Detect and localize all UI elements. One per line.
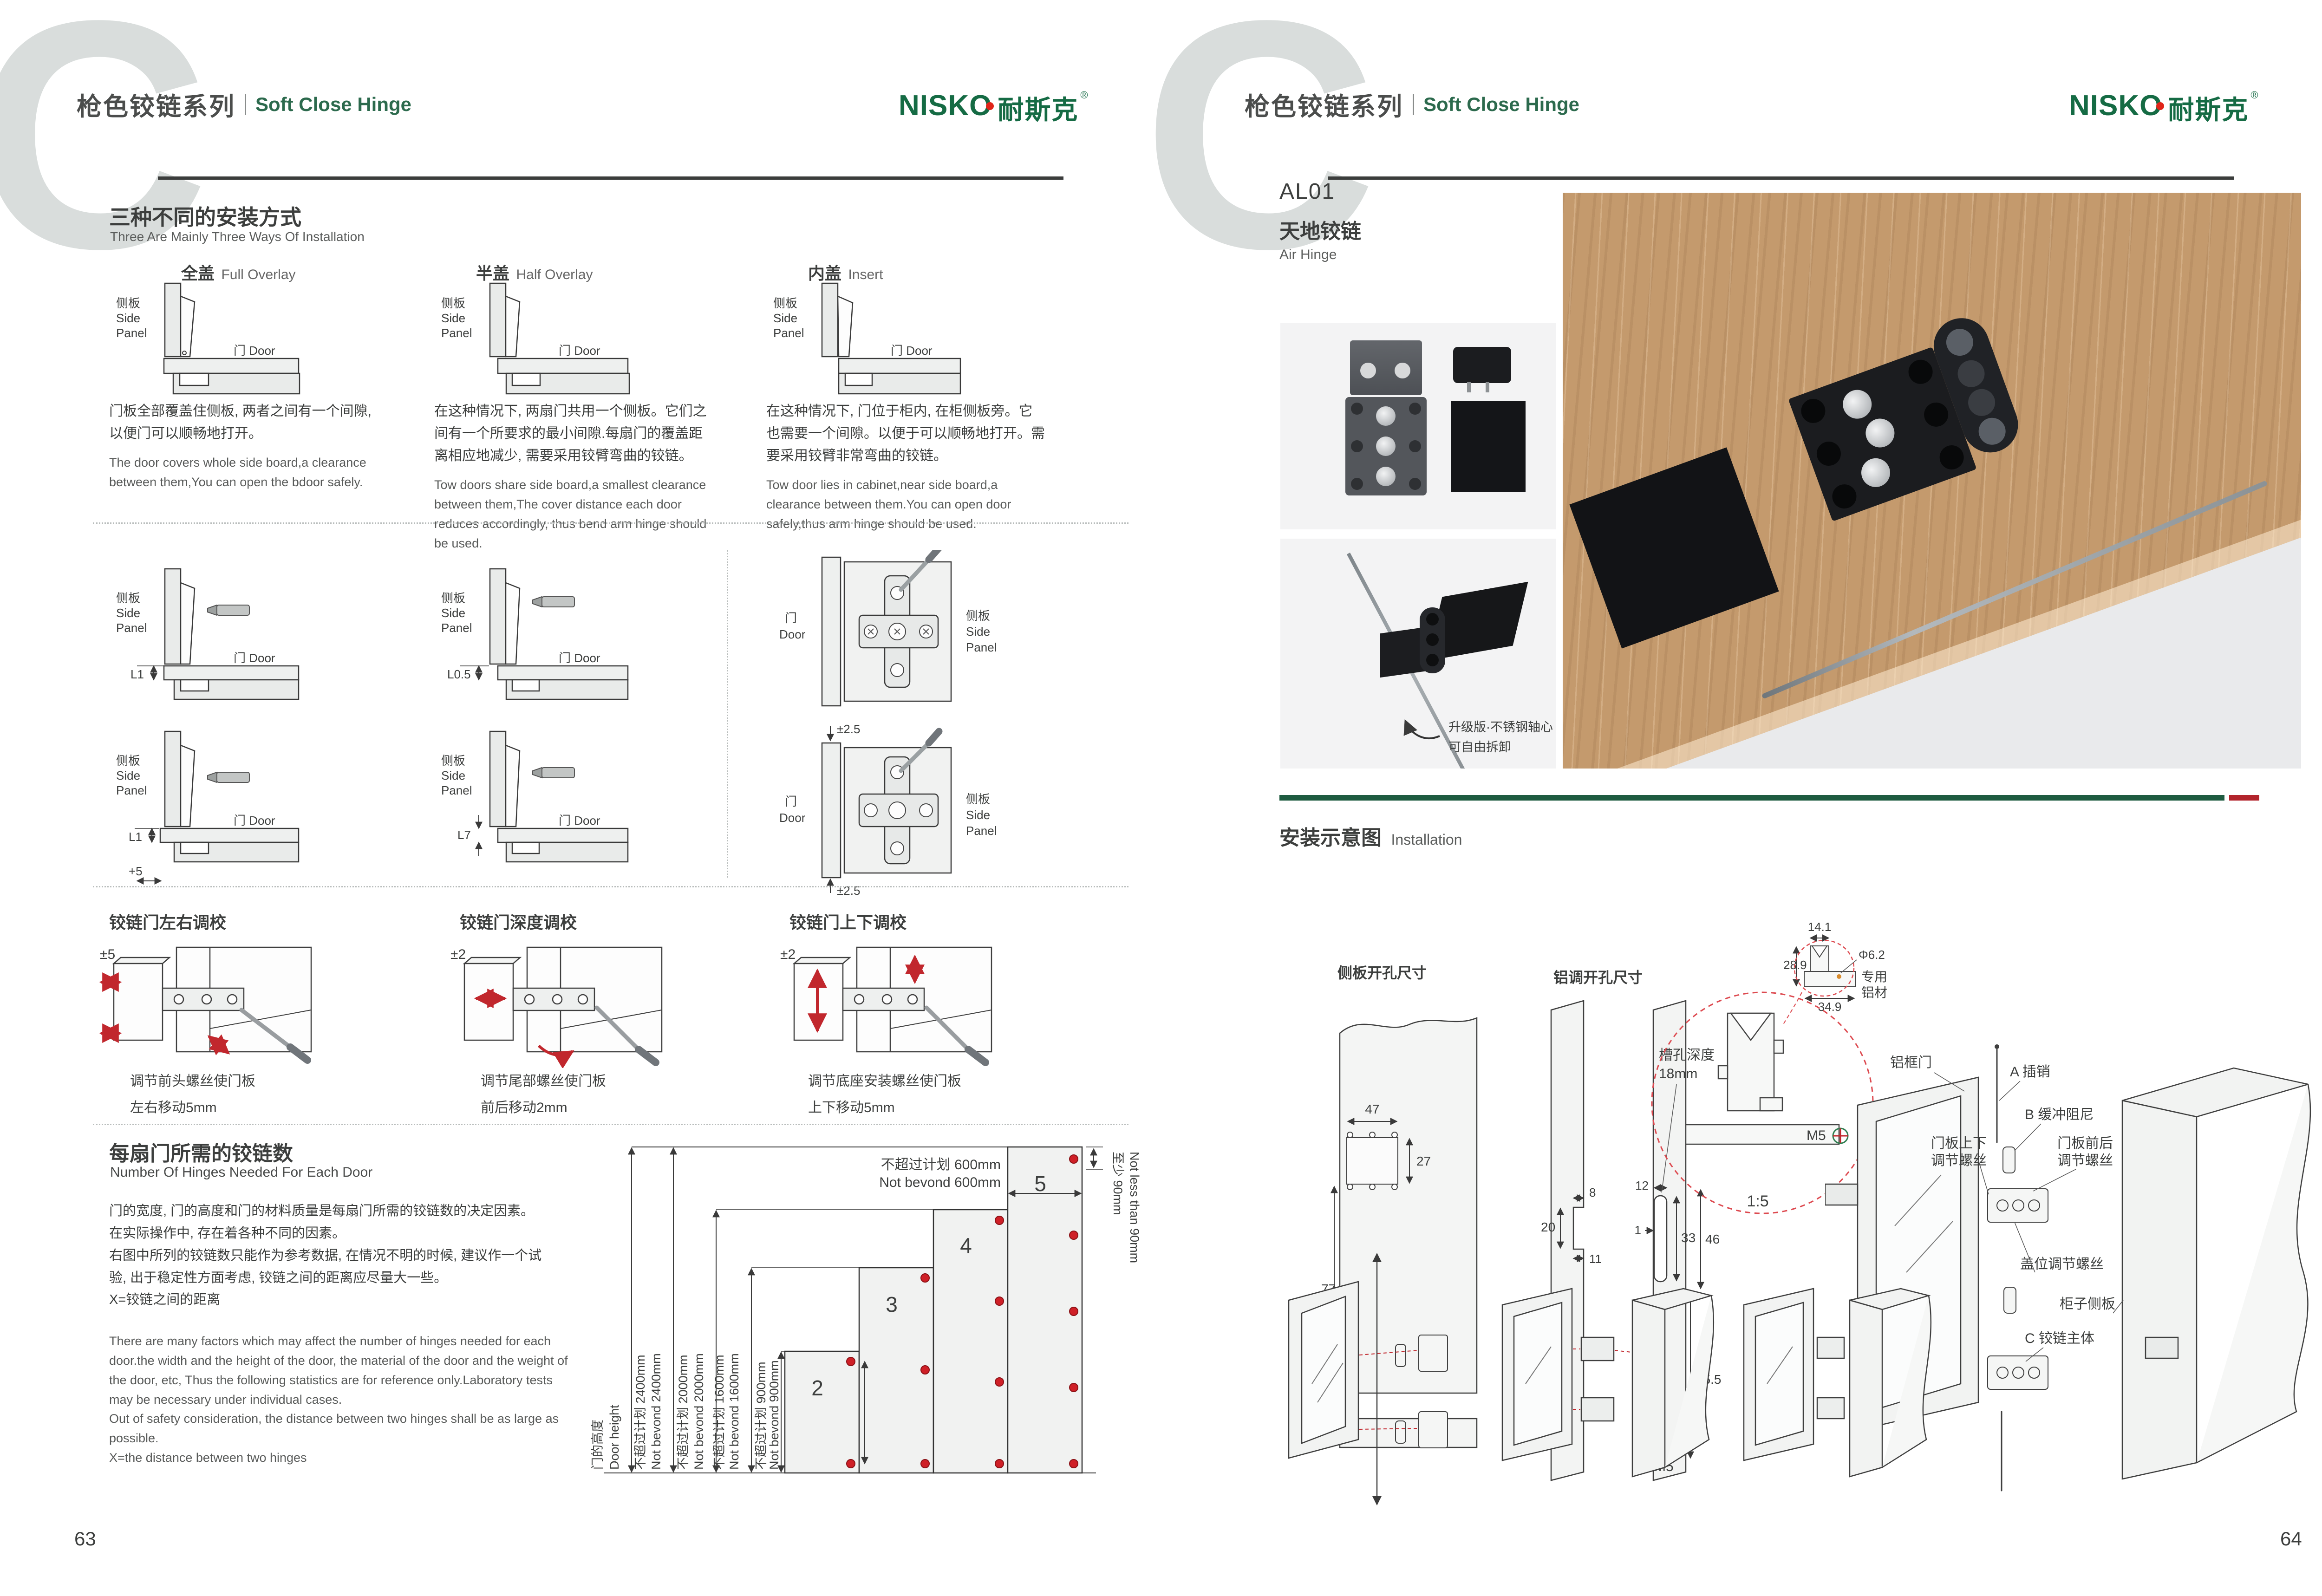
dim-141: 14.1 xyxy=(1808,920,1832,934)
desc-cn: 门板全部覆盖住侧板, 两者之间有一个间隙, 以便门可以顺畅地打开。 xyxy=(109,400,378,445)
dim-pm25-top: ±2.5 xyxy=(837,722,860,736)
logo-text-en: NISKO xyxy=(2069,89,2162,122)
hinge-count-chart: 2 3 4 5 门的高度 Door height 不超过计划 2400mm No… xyxy=(534,1128,1147,1505)
screw-hole xyxy=(1921,399,1952,430)
cap-pin xyxy=(1486,382,1489,392)
en-line: X=the distance between two hinges xyxy=(109,1448,574,1468)
note-line1: 升级版·不锈钢轴心 xyxy=(1448,717,1553,737)
label-cabinet: 柜子侧板 xyxy=(2060,1296,2115,1312)
separator-dashed xyxy=(93,1124,1128,1125)
bar-count-4: 4 xyxy=(960,1233,972,1257)
scale-label: 1:5 xyxy=(1747,1192,1768,1210)
width-note-en: Not bevond 600mm xyxy=(879,1175,1001,1190)
screw-hole xyxy=(1351,478,1363,490)
series-title-cn: 枪色铰链系列 xyxy=(1245,86,1403,123)
knuckle-hole xyxy=(1426,654,1439,666)
adjust3-diagram: ±2 xyxy=(773,938,1070,1068)
hinge-knuckle xyxy=(1420,607,1445,673)
photo-hinge-on-board xyxy=(1563,193,2301,769)
knuckle-hole xyxy=(1954,357,1988,391)
adjust-screw xyxy=(1857,454,1894,491)
panel-label-en1: Side xyxy=(116,606,140,620)
cn-line: 在实际操作中, 存在着各种不同的因素。 xyxy=(109,1223,555,1245)
drawingB-title: 铝调开孔尺寸 xyxy=(1553,966,1643,987)
axis-2400-cn: 不超过计划 2400mm xyxy=(633,1355,647,1470)
adjust-screw xyxy=(1839,386,1876,423)
page-number: 63 xyxy=(74,1528,96,1550)
material-label1: 专用 xyxy=(1861,970,1887,984)
hinge-flap xyxy=(1350,340,1422,395)
axis-1600-en: Not bevond 1600mm xyxy=(727,1353,741,1470)
dim-L1: L1 xyxy=(130,667,144,681)
photo-note: 升级版·不锈钢轴心 可自由拆卸 xyxy=(1448,717,1553,757)
dim-33: 33 xyxy=(1681,1231,1696,1245)
cap-pin xyxy=(1467,382,1471,392)
diagram-gap-L1: L1 侧板 Side Panel 门 Door xyxy=(109,550,369,713)
panel-label-en2: Panel xyxy=(441,326,472,340)
axis-door-height-cn: 门的高度 xyxy=(591,1420,605,1470)
dim-L7: L7 xyxy=(457,828,471,842)
knuckle-hole xyxy=(1975,414,2009,449)
bar-count-2: 2 xyxy=(811,1376,823,1400)
desc-full-overlay: 门板全部覆盖住侧板, 两者之间有一个间隙, 以便门可以顺畅地打开。 The do… xyxy=(109,400,378,492)
bar-count-3: 3 xyxy=(886,1292,898,1316)
screw-hole xyxy=(1351,440,1363,452)
adjust2-title: 铰链门深度调校 xyxy=(460,909,577,933)
screw-hole xyxy=(1813,438,1845,469)
panel-label-en2: Panel xyxy=(116,621,147,635)
panel-label-en2: Panel xyxy=(773,326,804,340)
knuckle-hole xyxy=(1426,613,1439,625)
note-line2: 可自由拆卸 xyxy=(1448,737,1553,757)
brand-logo: NISKO 耐斯克 ® xyxy=(2069,89,2258,127)
logo-red-dot-icon xyxy=(986,102,994,110)
door-label: 门 Door xyxy=(234,344,275,358)
axis-1600-cn: 不超过计划 1600mm xyxy=(712,1355,726,1470)
screw-hole xyxy=(1905,356,1936,387)
adjust-screw xyxy=(1376,436,1396,456)
door-label-en: Door xyxy=(779,627,806,641)
door-label: 门 Door xyxy=(559,651,600,665)
series-title-en: Soft Close Hinge xyxy=(1423,93,1579,116)
adjust1-diagram: ±5 xyxy=(93,938,390,1068)
screw-bit-icon xyxy=(533,597,574,607)
label-updown1: 门板上下 xyxy=(1931,1136,1987,1151)
panel-label-en2: Panel xyxy=(116,783,147,797)
en-line: There are many factors which may affect … xyxy=(109,1332,574,1409)
panel-label-cn: 侧板 xyxy=(441,296,465,310)
product-name-en: Air Hinge xyxy=(1279,247,1337,263)
en-line: Out of safety consideration, the distanc… xyxy=(109,1409,574,1448)
separator-dashed-vertical xyxy=(727,550,728,878)
product-code: AL01 xyxy=(1279,179,1335,204)
desc-en: Tow door lies in cabinet,near side board… xyxy=(766,476,1045,534)
dim-pm2: ±2 xyxy=(780,947,796,962)
label-overlay-screw: 盖位调节螺丝 xyxy=(2020,1257,2104,1272)
panel-label-en1: Side xyxy=(966,625,990,638)
panel-label-en1: Side xyxy=(441,769,465,782)
panel-label-cn: 侧板 xyxy=(441,754,465,768)
dim-27: 27 xyxy=(1416,1154,1431,1168)
separator-dashed xyxy=(93,886,1128,887)
drawingA-title: 侧板开孔尺寸 xyxy=(1337,961,1427,983)
desc-en: Tow doors share side board,a smallest cl… xyxy=(434,476,713,553)
screw-hole xyxy=(1351,403,1363,415)
magnet-hole xyxy=(1395,363,1410,378)
section4-title-cn: 每扇门所需的铰链数 xyxy=(109,1137,293,1166)
dim-pm5: ±5 xyxy=(100,947,115,962)
panel-label-en2: Panel xyxy=(441,621,472,635)
panel-label-en1: Side xyxy=(966,808,990,822)
diagram-mount-plate-front-adjust: ±2.5 ±2.5 门 Door 侧板 Side Panel xyxy=(766,717,1063,899)
door-label-cn: 门 xyxy=(785,795,797,808)
header-divider xyxy=(245,94,246,115)
section4-en-text: There are many factors which may affect … xyxy=(109,1332,574,1468)
section4-title-en: Number Of Hinges Needed For Each Door xyxy=(110,1165,372,1180)
panel-label-cn: 侧板 xyxy=(773,296,797,310)
panel-label-en1: Side xyxy=(441,311,465,325)
caption-line1: 调节尾部螺丝使门板 xyxy=(481,1068,606,1094)
axis-900-en: Not bevond 900mm xyxy=(767,1360,781,1470)
screw-bit-icon xyxy=(208,772,249,782)
section4-cn-text: 门的宽度, 门的高度和门的材料质量是每扇门所需的铰链数的决定因素。 在实际操作中… xyxy=(109,1200,555,1311)
logo-text-en: NISKO xyxy=(899,89,992,122)
dim-20: 20 xyxy=(1541,1220,1555,1234)
dim-L05: L0.5 xyxy=(447,667,471,681)
dim-1: 1 xyxy=(1635,1223,1641,1237)
caption-line2: 左右移动5mm xyxy=(130,1094,255,1121)
knuckle-hole xyxy=(1943,325,1977,359)
page-header: 枪色铰链系列 Soft Close Hinge xyxy=(1245,86,1579,123)
adjust-screw xyxy=(1862,415,1898,451)
installation-en: Installation xyxy=(1391,831,1462,848)
dim-plus5: +5 xyxy=(129,864,143,878)
knuckle-hole xyxy=(1426,633,1439,646)
screw-hole xyxy=(1409,440,1421,452)
watermark-letter: C xyxy=(1142,0,1377,297)
product-name-cn: 天地铰链 xyxy=(1279,215,1361,244)
panel-label-en2: Panel xyxy=(116,326,147,340)
cn-line: 门的宽度, 门的高度和门的材料质量是每扇门所需的铰链数的决定因素。 xyxy=(109,1200,555,1223)
hinge-cover-cap xyxy=(1453,347,1511,383)
drawingF-sequence xyxy=(1279,1244,1944,1514)
axis-door-height-en: Door height xyxy=(607,1405,621,1470)
section-divider-red xyxy=(2229,795,2259,801)
screw-hole xyxy=(1409,403,1421,415)
photo-hinge-components xyxy=(1280,323,1556,529)
knuckle-hole xyxy=(1964,385,1999,420)
panel-label-cn: 侧板 xyxy=(116,754,140,768)
cn-line: X=铰链之间的距离 xyxy=(109,1289,555,1311)
caption-line1: 调节前头螺丝使门板 xyxy=(130,1068,255,1094)
diagram-mount-plate-front: 门 Door 侧板 Side Panel xyxy=(766,550,1063,713)
label-damper: B 缓冲阻尼 xyxy=(2025,1107,2094,1122)
separator-dashed xyxy=(93,522,1128,524)
section-divider-green xyxy=(1279,795,2224,801)
screw-hole xyxy=(1409,478,1421,490)
screw-hole xyxy=(1936,442,1967,473)
page-number: 64 xyxy=(2280,1528,2302,1550)
screw-bit-icon xyxy=(208,605,249,615)
desc-cn: 在这种情况下, 两扇门共用一个侧板。它们之间有一个所要求的最小间隙.每扇门的覆盖… xyxy=(434,400,713,467)
cn-line: 右图中所列的铰链数只能作为参考数据, 在情况不明的时候, 建议作一个试验, 出于… xyxy=(109,1245,555,1290)
logo-red-dot-icon xyxy=(2156,102,2164,110)
dim-47: 47 xyxy=(1365,1102,1379,1116)
adjust3-caption: 调节底座安装螺丝使门板 上下移动5mm xyxy=(808,1068,961,1121)
panel-label-cn: 侧板 xyxy=(441,591,465,605)
label-frontback2: 调节螺丝 xyxy=(2057,1153,2113,1168)
bar-count-5: 5 xyxy=(1034,1172,1046,1196)
panel-label-en2: Panel xyxy=(966,824,997,838)
section1-title-cn: 三种不同的安装方式 xyxy=(109,201,301,231)
adjust3-title: 铰链门上下调校 xyxy=(789,909,907,933)
mounting-pad xyxy=(1451,401,1526,492)
note-arrow-icon xyxy=(1399,710,1445,748)
panel-label-en1: Side xyxy=(773,311,797,325)
photo-hinge-with-shaft: 升级版·不锈钢轴心 可自由拆卸 xyxy=(1280,539,1556,769)
catalog-spread: C 枪色铰链系列 Soft Close Hinge NISKO 耐斯克 ® 三种… xyxy=(0,0,2322,1596)
header-divider xyxy=(1413,94,1414,115)
screw-bit-icon xyxy=(533,768,574,778)
door-label: 门 Door xyxy=(891,344,933,358)
caption-line1: 调节底座安装螺丝使门板 xyxy=(808,1068,961,1094)
pin-dot xyxy=(1837,974,1841,979)
thread-M5: M5 xyxy=(1807,1128,1826,1143)
logo-text-cn: 耐斯克 xyxy=(2168,89,2249,127)
hinge-base-plate xyxy=(1345,397,1427,495)
adjust-screw xyxy=(1376,467,1396,486)
adjust-screw xyxy=(1376,406,1396,426)
series-title-cn: 枪色铰链系列 xyxy=(77,86,235,123)
min-note-cn: 至少 90mm xyxy=(1111,1152,1125,1215)
panel-label-cn: 侧板 xyxy=(966,792,990,806)
desc-insert: 在这种情况下, 门位于柜内, 在柜侧板旁。它也需要一个间隙。以便于可以顺畅地打开… xyxy=(766,400,1045,534)
axis-900-cn: 不超过计划 900mm xyxy=(754,1361,768,1470)
dim-L1: L1 xyxy=(129,830,142,844)
min-note-en: Not less than 90mm xyxy=(1128,1152,1141,1263)
desc-half-overlay: 在这种情况下, 两扇门共用一个侧板。它们之间有一个所要求的最小间隙.每扇门的覆盖… xyxy=(434,400,713,553)
watermark-letter: C xyxy=(0,0,209,297)
panel-label-en1: Side xyxy=(116,311,140,325)
panel-label-en2: Panel xyxy=(966,640,997,654)
door-label: 门 Door xyxy=(234,814,275,827)
diagram-half-overlay: 侧板 Side Panel 门 Door xyxy=(434,279,694,395)
caption-line2: 上下移动5mm xyxy=(808,1094,961,1121)
panel-label-cn: 侧板 xyxy=(116,296,140,310)
brand-logo: NISKO 耐斯克 ® xyxy=(899,89,1088,127)
adjust2-diagram: ±2 xyxy=(444,938,741,1068)
door-label: 门 Door xyxy=(559,814,600,827)
diagram-gap-L7: L7 侧板 Side Panel 门 Door xyxy=(434,722,694,889)
label-frontback1: 门板前后 xyxy=(2057,1136,2113,1151)
registered-mark: ® xyxy=(1080,89,1088,101)
dim-dia62: Φ6.2 xyxy=(1859,948,1885,962)
label-pin: A 插销 xyxy=(2010,1064,2050,1080)
diagram-gap-L05: L0.5 侧板 Side Panel 门 Door xyxy=(434,550,694,713)
page-header: 枪色铰链系列 Soft Close Hinge xyxy=(77,86,411,123)
dim-pm2: ±2 xyxy=(450,947,466,962)
axis-2000-cn: 不超过计划 2000mm xyxy=(676,1355,690,1470)
label-alu-door: 铝框门 xyxy=(1890,1055,1932,1070)
width-note-cn: 不超过计划 600mm xyxy=(881,1157,1001,1173)
header-rule xyxy=(158,176,1063,180)
adjust1-title: 铰链门左右调校 xyxy=(109,909,226,933)
door-label: 门 Door xyxy=(559,344,600,358)
axis-2400-en: Not bevond 2400mm xyxy=(649,1353,663,1470)
panel-label-cn: 侧板 xyxy=(116,591,140,605)
series-title-en: Soft Close Hinge xyxy=(255,93,411,116)
panel-label-en1: Side xyxy=(441,606,465,620)
panel-label-en2: Panel xyxy=(441,783,472,797)
door-label: 门 Door xyxy=(234,651,275,665)
dim-8: 8 xyxy=(1589,1186,1596,1199)
desc-en: The door covers whole side board,a clear… xyxy=(109,453,378,492)
registered-mark: ® xyxy=(2250,89,2258,101)
panel-label-cn: 侧板 xyxy=(966,609,990,623)
axis-2000-en: Not bevond 2000mm xyxy=(692,1353,706,1470)
logo-text-cn: 耐斯克 xyxy=(998,89,1078,127)
installation-heading: 安装示意图 Installation xyxy=(1279,821,1462,851)
door-label-cn: 门 xyxy=(785,611,797,625)
left-page: C 枪色铰链系列 Soft Close Hinge NISKO 耐斯克 ® 三种… xyxy=(0,0,1168,1596)
label-hinge-body: C 铰链主体 xyxy=(2025,1331,2094,1346)
panel-label-en1: Side xyxy=(116,769,140,782)
door-label-en: Door xyxy=(779,811,806,825)
header-rule xyxy=(1328,176,2234,180)
diagram-full-overlay: 侧板 Side Panel 门 Door xyxy=(109,279,369,395)
adjust2-caption: 调节尾部螺丝使门板 前后移动2mm xyxy=(481,1068,606,1121)
magnet-hole xyxy=(1360,363,1376,378)
installation-cn: 安装示意图 xyxy=(1279,827,1382,849)
caption-line2: 前后移动2mm xyxy=(481,1094,606,1121)
right-page: C 枪色铰链系列 Soft Close Hinge NISKO 耐斯克 ® AL… xyxy=(1168,0,2322,1596)
desc-cn: 在这种情况下, 门位于柜内, 在柜侧板旁。它也需要一个间隙。以便于可以顺畅地打开… xyxy=(766,400,1045,467)
adjust1-caption: 调节前头螺丝使门板 左右移动5mm xyxy=(130,1068,255,1121)
screw-hole xyxy=(1829,481,1860,512)
diagram-insert: 侧板 Side Panel 门 Door xyxy=(766,279,1026,395)
diagram-gap-L1-plus5: L1 +5 侧板 Side Panel 门 Door xyxy=(109,722,369,889)
screw-hole xyxy=(1798,396,1829,427)
section1-title-en: Three Are Mainly Three Ways Of Installat… xyxy=(110,229,365,244)
